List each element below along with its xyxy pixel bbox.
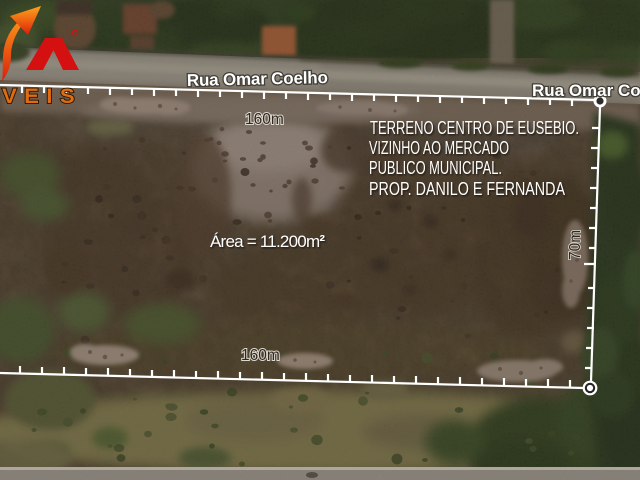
svg-text:160m: 160m (245, 111, 284, 128)
svg-text:VIZINHO AO MERCADO: VIZINHO AO MERCADO (369, 138, 509, 158)
svg-text:TERRENO CENTRO DE EUSEBIO.: TERRENO CENTRO DE EUSEBIO. (370, 118, 579, 138)
svg-text:PUBLICO MUNICIPAL.: PUBLICO MUNICIPAL. (369, 158, 502, 178)
svg-text:Rua Omar Coe: Rua Omar Coe (532, 81, 640, 100)
svg-text:VEIS: VEIS (2, 85, 82, 108)
svg-text:70m: 70m (567, 230, 584, 260)
svg-text:160m: 160m (241, 347, 280, 364)
svg-text:Rua Omar Coelho: Rua Omar Coelho (187, 68, 328, 90)
svg-text:PROP. DANILO E FERNANDA: PROP. DANILO E FERNANDA (369, 179, 565, 199)
svg-text:Área = 11.200m²: Área = 11.200m² (210, 232, 325, 251)
